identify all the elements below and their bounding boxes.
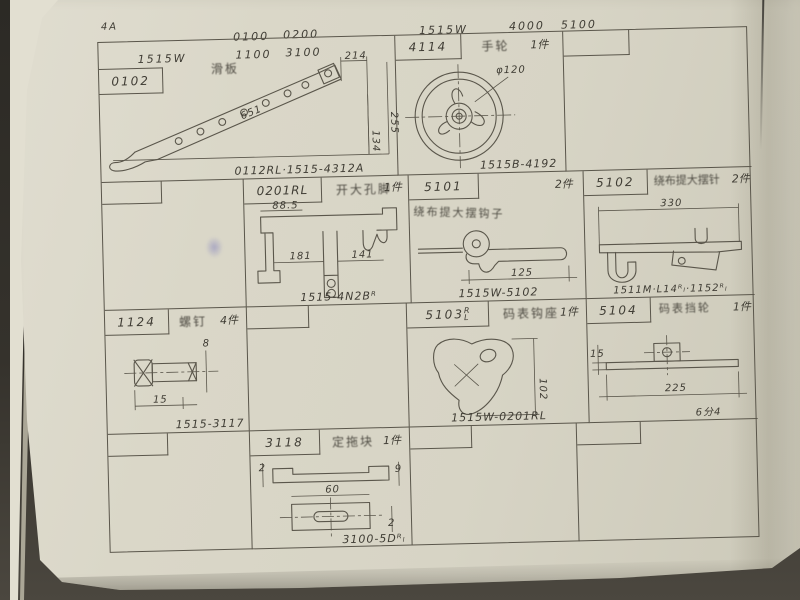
svg-text:9: 9 bbox=[395, 464, 403, 475]
quantity: 1件 bbox=[530, 36, 548, 52]
cell-0201rl: 0201RL 开大孔脚 1件 88.5 181 141 1 bbox=[244, 175, 412, 307]
cell-empty-r2c1 bbox=[102, 179, 247, 310]
quantity: 2件 bbox=[555, 175, 573, 191]
svg-text:134: 134 bbox=[369, 130, 381, 152]
dim-note: 6分4 bbox=[589, 403, 721, 421]
drawing-sheet: 4A 0100 0200 1515W 4000 5100 1515W 1100 … bbox=[95, 0, 768, 568]
svg-text:125: 125 bbox=[511, 267, 533, 279]
cell-0102: 0102 滑板 214 255 134 bbox=[98, 36, 398, 183]
quantity: 1件 bbox=[384, 179, 402, 195]
cell-5103: 5103 RL 码表钩座 1件 102 1515W-0201RL bbox=[407, 299, 590, 427]
svg-text:181: 181 bbox=[289, 251, 311, 263]
empty-part-number-box bbox=[410, 426, 473, 450]
svg-text:225: 225 bbox=[665, 383, 687, 395]
quantity: 2件 bbox=[732, 170, 750, 186]
svg-text:φ120: φ120 bbox=[496, 65, 526, 77]
cell-5102: 5102 绕布提大摆针 2件 330 1511M·L14ᴿₗ·1152ᴿₗ bbox=[584, 167, 755, 299]
svg-text:330: 330 bbox=[660, 198, 682, 210]
handwheel-drawing: φ120 bbox=[396, 58, 567, 172]
photographed-parts-catalog-page: 4A 0100 0200 1515W 4000 5100 1515W 1100 … bbox=[0, 0, 800, 600]
svg-text:15: 15 bbox=[153, 394, 168, 405]
quantity: 1件 bbox=[383, 432, 401, 448]
svg-text:2: 2 bbox=[259, 463, 267, 474]
drawing-caption: 3100-5Dᴿₗ bbox=[252, 532, 405, 549]
part-name: 手轮 bbox=[481, 37, 509, 55]
svg-text:141: 141 bbox=[351, 249, 373, 261]
svg-text:651: 651 bbox=[239, 104, 264, 123]
cell-empty-r3c2 bbox=[247, 304, 410, 432]
part-number-box: 5102 bbox=[584, 170, 649, 197]
cell-3118: 3118 定拖块 1件 2 9 60 2 3100-5Dᴿₗ bbox=[250, 427, 413, 549]
part-name: 码表挡轮 bbox=[659, 299, 711, 316]
svg-text:102: 102 bbox=[537, 378, 549, 400]
part-number-box: 5104 bbox=[587, 298, 652, 325]
cell-5104: 5104 码表挡轮 1件 15 225 6分4 bbox=[587, 295, 758, 423]
drawing-caption: 1515-4N2Bᴿ bbox=[246, 288, 410, 305]
ink-smudge bbox=[205, 236, 224, 258]
swing-pin-drawing: 330 bbox=[584, 197, 754, 287]
part-number-box: 3118 bbox=[250, 430, 321, 457]
part-name: 螺钉 bbox=[179, 312, 207, 330]
svg-text:88.5: 88.5 bbox=[272, 200, 299, 212]
drawing-caption: 1515B-4192 bbox=[398, 157, 557, 174]
svg-text:2: 2 bbox=[388, 518, 396, 529]
svg-text:15: 15 bbox=[590, 349, 605, 360]
part-number-box: 4114 bbox=[395, 34, 462, 61]
part-number-box: 1124 bbox=[105, 309, 170, 336]
empty-part-number-box bbox=[108, 433, 169, 456]
empty-part-number-box bbox=[102, 181, 163, 204]
cell-4114: 4114 手轮 1件 φ120 1515B-4192 bbox=[395, 32, 566, 176]
part-name: 定拖块 bbox=[332, 432, 374, 450]
page-number: 4A bbox=[101, 21, 118, 32]
screw-drawing: 8 15 bbox=[105, 333, 249, 420]
parts-grid: 0102 滑板 214 255 134 bbox=[97, 26, 759, 553]
part-number: 5103 bbox=[425, 307, 464, 322]
cell-empty-r4c1 bbox=[108, 431, 253, 552]
part-name: 绕布提大摆钩子 bbox=[413, 203, 504, 222]
empty-part-number-box bbox=[577, 422, 642, 446]
cell-5101: 5101 绕布提大摆钩子 2件 125 1515W-5102 bbox=[409, 171, 587, 303]
guard-wheel-drawing: 15 225 bbox=[587, 323, 757, 413]
part-number-box: 5103 RL bbox=[407, 302, 490, 329]
part-number-box: 5101 bbox=[409, 174, 480, 201]
svg-text:60: 60 bbox=[325, 484, 340, 495]
slide-plate-drawing: 214 255 134 651 bbox=[99, 50, 399, 169]
cell-empty-r4c3 bbox=[410, 423, 580, 545]
part-name: 码表钩座 bbox=[503, 304, 559, 322]
cell-empty-r1c3 bbox=[563, 27, 751, 171]
quantity: 1件 bbox=[560, 303, 578, 319]
cell-1124: 1124 螺钉 4件 8 15 1515-3117 bbox=[105, 307, 250, 434]
part-number-suffix: RL bbox=[464, 307, 470, 321]
cell-empty-r4c4 bbox=[577, 419, 761, 541]
quantity: 4件 bbox=[220, 312, 238, 328]
svg-text:8: 8 bbox=[203, 338, 211, 349]
empty-part-number-box bbox=[563, 30, 630, 57]
drawing-caption: 1515-3117 bbox=[107, 417, 244, 433]
empty-part-number-box bbox=[247, 306, 310, 330]
svg-text:214: 214 bbox=[345, 50, 367, 62]
part-name: 绕布提大摆针 bbox=[654, 171, 720, 189]
quantity: 1件 bbox=[733, 298, 751, 314]
